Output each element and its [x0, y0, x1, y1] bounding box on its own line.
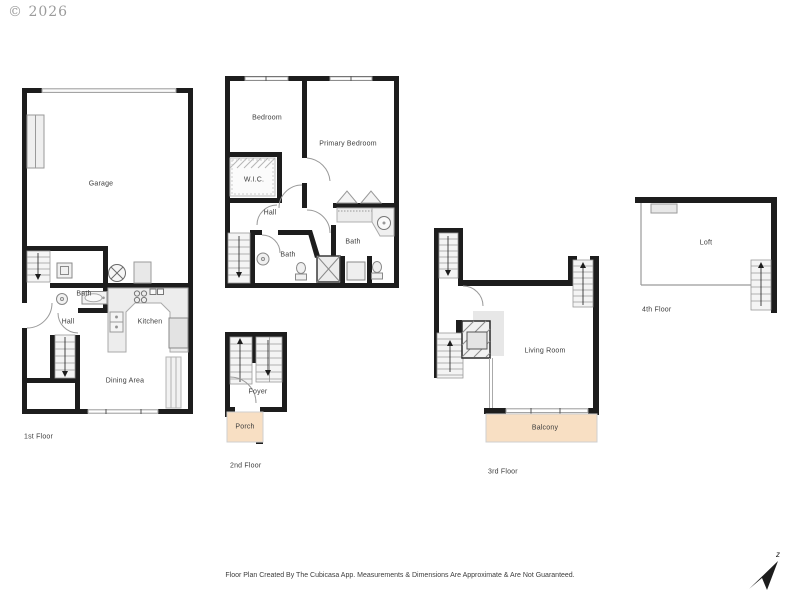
room-label-balcony: Balcony — [532, 425, 558, 432]
stairs-icon — [55, 335, 75, 378]
watermark: © 2026 — [8, 4, 68, 20]
stairs-icon — [751, 260, 771, 310]
disclaimer-text: Floor Plan Created By The Cubicasa App. … — [0, 572, 800, 579]
room-label-foyer: Foyer — [249, 389, 268, 396]
toilet-icon — [372, 262, 383, 280]
room-label-dining-area: Dining Area — [106, 378, 144, 385]
hvac-fan-icon — [109, 265, 126, 282]
floor-label-3rd: 3rd Floor — [488, 469, 518, 476]
room-label-hall-2f: Hall — [264, 210, 277, 217]
stairs-icon — [228, 233, 250, 283]
floor-label-4th: 4th Floor — [642, 307, 671, 314]
room-label-primary-bedroom: Primary Bedroom — [319, 141, 376, 148]
floor-plan-page: © 2026 Garage Bath Hall Kitchen Dining A… — [0, 0, 800, 600]
floor-label-2nd: 2nd Floor — [230, 463, 261, 470]
first-floor-plan — [22, 88, 193, 414]
room-label-porch: Porch — [235, 424, 254, 431]
fourth-floor-plan — [635, 197, 777, 313]
toilet-icon — [296, 263, 307, 281]
room-label-garage: Garage — [89, 181, 114, 188]
garage-door — [42, 89, 176, 93]
bathroom-sink-icon — [257, 253, 269, 265]
dormer — [651, 204, 677, 213]
floor-label-1st: 1st Floor — [24, 434, 53, 441]
room-label-kitchen: Kitchen — [138, 319, 163, 326]
water-heater-icon — [57, 263, 72, 278]
window — [88, 409, 158, 414]
room-label-loft: Loft — [700, 240, 712, 247]
stairs-icon — [230, 337, 282, 384]
window — [506, 408, 588, 414]
loft-railing — [641, 203, 751, 285]
fireplace-icon — [462, 311, 504, 358]
floor-plan-canvas — [0, 0, 800, 600]
door-arc — [463, 286, 483, 306]
shower-icon — [317, 256, 340, 282]
third-floor-plan — [434, 228, 599, 442]
cabinet-icon — [110, 312, 123, 332]
walls — [434, 228, 599, 415]
corner-sink-icon — [372, 208, 394, 236]
stairs-icon — [573, 260, 593, 307]
storage-cabinet-icon — [27, 115, 44, 168]
stairs-icon — [27, 251, 50, 282]
stairs-icon — [439, 233, 458, 278]
window-bay — [166, 357, 181, 408]
north-arrow-label: z — [776, 550, 780, 559]
bed-pillows-icon — [337, 191, 381, 203]
room-label-bath-small: Bath — [280, 252, 295, 259]
shower-base-icon — [347, 262, 365, 280]
room-label-bath-main: Bath — [345, 239, 360, 246]
stairs-icon — [437, 333, 463, 378]
appliance-icon — [134, 262, 151, 283]
room-label-wic: W.I.C. — [244, 177, 264, 184]
railing — [490, 358, 493, 408]
room-label-bedroom: Bedroom — [252, 115, 282, 122]
room-label-hall-1f: Hall — [62, 319, 75, 326]
room-label-bath-1f: Bath — [76, 291, 91, 298]
refrigerator-icon — [169, 318, 188, 348]
room-label-living-room: Living Room — [524, 348, 565, 355]
bathroom-sink-icon — [57, 294, 68, 305]
